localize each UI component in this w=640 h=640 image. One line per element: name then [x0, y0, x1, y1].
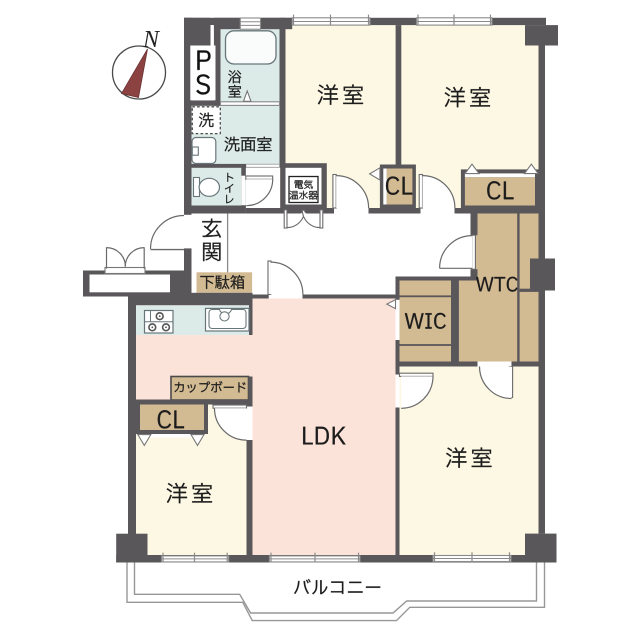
- svg-text:N: N: [142, 27, 161, 53]
